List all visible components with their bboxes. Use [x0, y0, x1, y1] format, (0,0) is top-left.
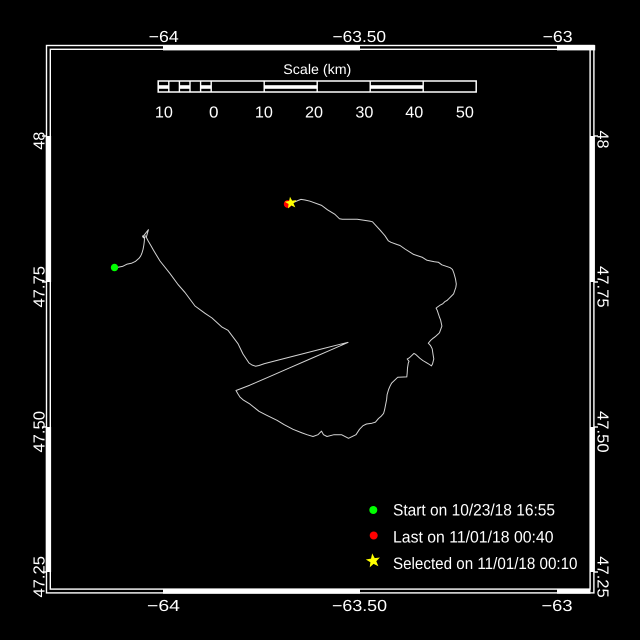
svg-text:20: 20: [305, 105, 323, 122]
svg-text:Last on 11/01/18 00:40: Last on 11/01/18 00:40: [393, 528, 554, 546]
svg-text:−63.50: −63.50: [333, 29, 387, 46]
svg-text:48: 48: [594, 131, 611, 149]
svg-text:10: 10: [155, 105, 173, 122]
svg-text:50: 50: [456, 105, 474, 122]
svg-text:Scale (km): Scale (km): [283, 61, 351, 77]
svg-text:47.50: 47.50: [31, 411, 48, 453]
svg-text:−63: −63: [543, 29, 573, 46]
svg-text:−64: −64: [147, 598, 180, 615]
svg-text:0: 0: [209, 105, 219, 122]
svg-text:47.75: 47.75: [594, 266, 611, 308]
svg-text:47.25: 47.25: [594, 556, 611, 598]
svg-text:48: 48: [31, 132, 48, 150]
svg-text:30: 30: [355, 105, 373, 122]
svg-text:47.75: 47.75: [31, 266, 48, 308]
svg-text:10: 10: [255, 105, 273, 122]
svg-text:Selected on 11/01/18 00:10: Selected on 11/01/18 00:10: [393, 555, 578, 573]
svg-text:47.50: 47.50: [594, 411, 611, 453]
svg-text:−63: −63: [542, 598, 573, 615]
svg-text:−63.50: −63.50: [332, 598, 387, 615]
svg-text:−64: −64: [149, 29, 179, 46]
svg-text:Start on 10/23/18 16:55: Start on 10/23/18 16:55: [393, 502, 555, 520]
svg-text:40: 40: [405, 105, 423, 122]
svg-text:47.25: 47.25: [31, 556, 48, 598]
